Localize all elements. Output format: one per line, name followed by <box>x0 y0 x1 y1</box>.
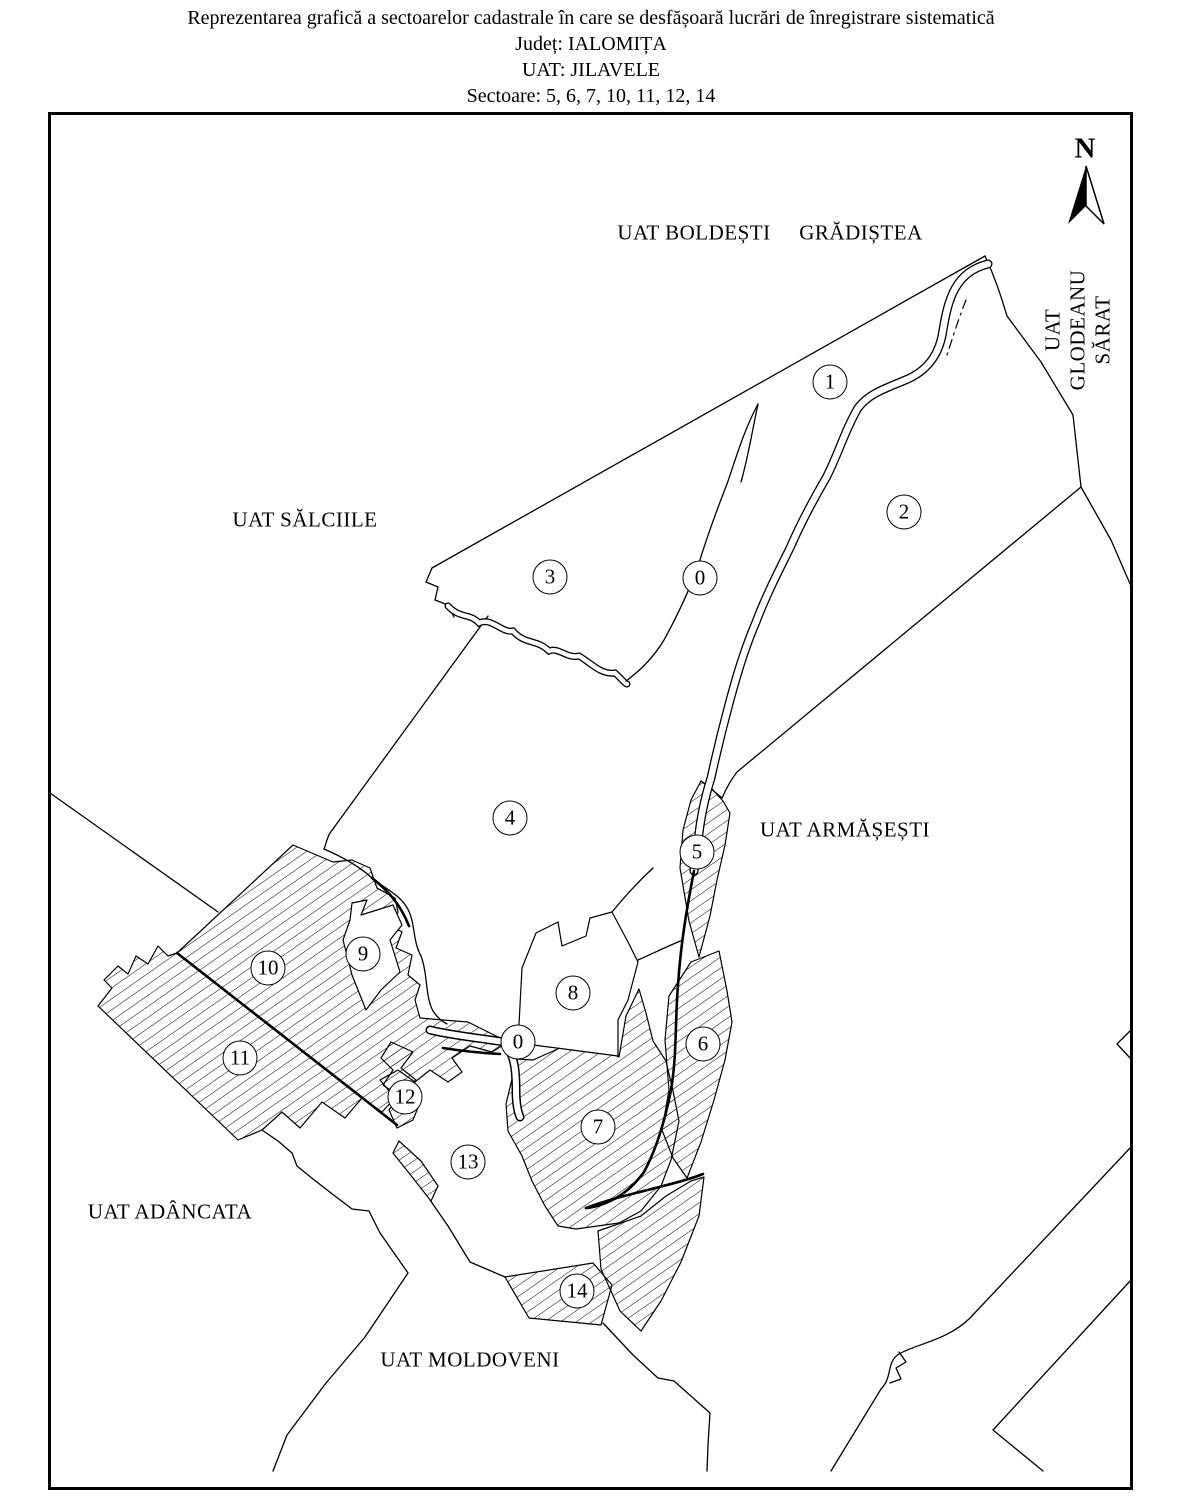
cadastral-map-svg <box>0 0 1182 1503</box>
